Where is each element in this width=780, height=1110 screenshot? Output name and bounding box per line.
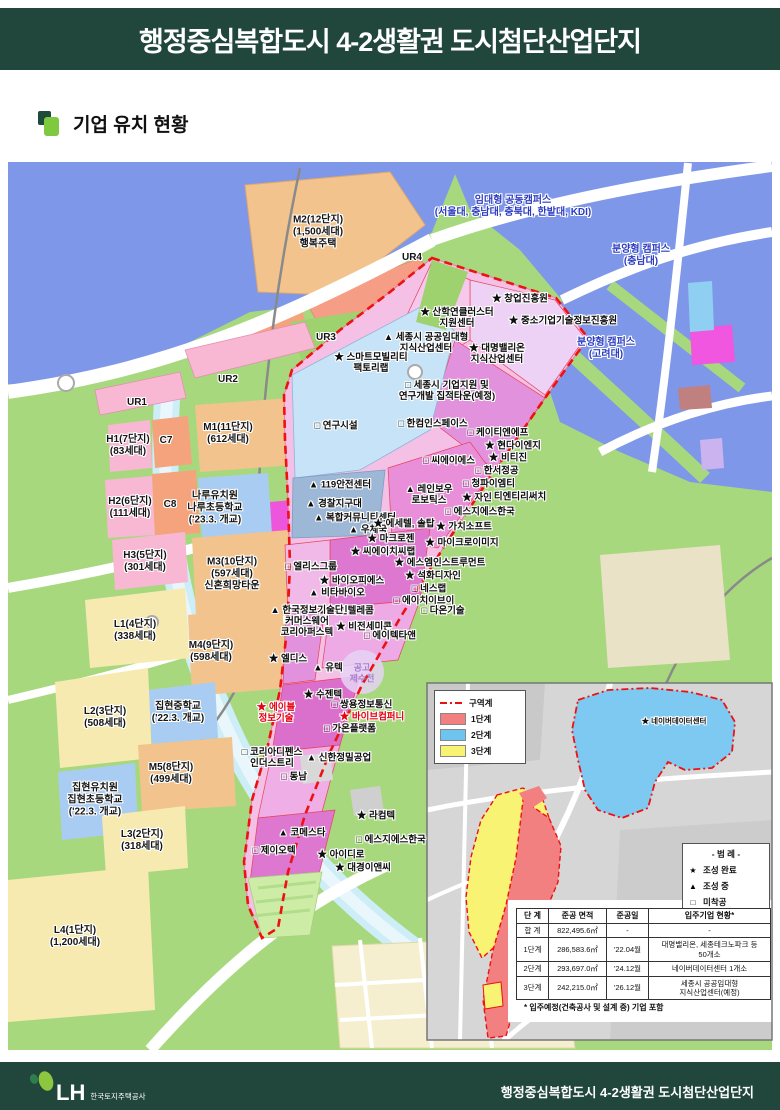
company-label: ★ 가치소프트 <box>436 521 492 532</box>
company-label: ▲ 유텍 <box>313 662 343 673</box>
company-label: □ 코리아디펜스 인더스트리 <box>242 747 303 769</box>
stage-table-row: 2단계293,697.0㎡'24.12월네이버데이터센터 1개소 <box>517 962 771 976</box>
zone-legend-item: 3단계 <box>440 743 520 759</box>
marker-legend-label: 미착공 <box>703 896 726 908</box>
company-label: ★ 에이블 정보기술 <box>257 702 295 724</box>
map-area-label: M1(11단지) (612세대) <box>203 422 253 446</box>
map-area-label: UR3 <box>316 332 336 344</box>
footer-title: 행정중심복합도시 4-2생활권 도시첨단산업단지 <box>501 1082 754 1101</box>
stage-table-cell: 대명밸리온, 세종테크노파크 등 50개소 <box>649 938 771 962</box>
company-label: □ 에이텍타앤 <box>364 630 416 641</box>
map-area-label: UR2 <box>218 374 238 386</box>
company-label: □ 연구시설 <box>314 420 357 431</box>
company-label: □ 에스지에스한국 <box>445 506 515 517</box>
company-label: ★ 현다이엔지 <box>485 440 541 451</box>
company-label: □ 세종시 기업지원 및 연구개발 집적타운(예정) <box>399 380 495 402</box>
stage-table-row: 1단계286,583.6㎡'22.04월대명밸리온, 세종테크노파크 등 50개… <box>517 938 771 962</box>
map-area-label: H3(5단지) (301세대) <box>123 550 166 574</box>
company-label: □ 엘리스그룹 <box>285 561 337 572</box>
campus-label: 분양형 캠퍼스 (고려대) <box>577 337 635 361</box>
company-label: ★ 라컴텍 <box>357 810 395 821</box>
stage-table-cell: 세종시 공공임대형 지식산업센터(예정) <box>649 976 771 1000</box>
stage-table-header: 준공일 <box>607 909 649 924</box>
stage-table-cell: 293,697.0㎡ <box>549 962 607 976</box>
marker-legend-title: - 범 례 - <box>688 848 764 860</box>
map-area-label: M5(8단지) (499세대) <box>149 762 194 786</box>
company-label: □ 쌍용정보통신 <box>332 699 393 710</box>
company-label: ★ 바이오피에스 <box>320 575 385 586</box>
company-label: ▲ 코메스타 <box>278 827 325 838</box>
company-label: □ 한컴인스페이스 <box>398 418 468 429</box>
map-area-label: H2(6단지) (111세대) <box>108 496 151 520</box>
map-area-label: M2(12단지) (1,500세대) 행복주택 <box>293 214 343 249</box>
company-label: ★ 아이디로 <box>317 849 364 860</box>
company-label: ▲ 레인보우 로보틱스 <box>405 484 452 506</box>
stage-table-row: 합 계822,495.6㎡-- <box>517 924 771 938</box>
page: 행정중심복합도시 4-2생활권 도시첨단산업단지 기업 유치 현황 <box>0 0 780 1110</box>
map-area-label: 집현중학교 ('22.3. 개교) <box>152 701 204 725</box>
company-label: ★ 중소기업기술정보진흥원 <box>509 315 617 326</box>
company-label: □ 가온플랫폼 <box>324 723 376 734</box>
stage-table-cell: - <box>649 924 771 938</box>
zone-legend-item: 2단계 <box>440 727 520 743</box>
company-label: □ 다온기술 <box>421 605 464 616</box>
zone-legend-label: 3단계 <box>471 745 491 757</box>
stage-table: 단 계준공 면적준공일입주기업 현황* 합 계822,495.6㎡--1단계28… <box>516 908 771 1000</box>
stage-table-cell: 3단계 <box>517 976 549 1000</box>
map-area-label: L4(1단지) (1,200세대) <box>50 925 100 949</box>
company-label: ★ 자인 <box>462 492 492 503</box>
lh-logo-text: LH <box>56 1082 85 1104</box>
stage-table-cell: '24.12월 <box>607 962 649 976</box>
map-area-label: L2(3단지) (508세대) <box>84 706 126 730</box>
lh-logo-icon <box>26 1070 56 1104</box>
map-area-label: L1(4단지) (338세대) <box>114 619 156 643</box>
table-footnote: * 입주예정(건축공사 및 설계 중) 기업 포함 <box>524 1002 664 1013</box>
company-label: ▲ 경찰지구대 <box>306 498 362 509</box>
stage-table-row: 3단계242,215.0㎡'26.12월세종시 공공임대형 지식산업센터(예정) <box>517 976 771 1000</box>
company-label: ★ 바이브컴퍼니 <box>340 711 405 722</box>
company-label: ▲ 비타바이오 <box>309 587 365 598</box>
stage-color-chip <box>440 713 466 725</box>
company-label: ★ 에세텔, 솔탑 <box>373 518 434 529</box>
stage-table-cell: '22.04월 <box>607 938 649 962</box>
company-label: ★ 마이크로이미지 <box>425 537 498 548</box>
stage-table-header: 준공 면적 <box>549 909 607 924</box>
marker-legend-item: ★조성 완료 <box>688 862 764 878</box>
stage-table-header: 단 계 <box>517 909 549 924</box>
inset-zone-legend: 구역계1단계2단계3단계 <box>434 690 526 764</box>
zone-legend-label: 1단계 <box>471 713 491 725</box>
map-area-label: 집현유치원 집현초등학교 ('22.3. 개교) <box>67 782 122 817</box>
stage-table-cell: '26.12월 <box>607 976 649 1000</box>
company-label: □ 제이오텍 <box>252 845 295 856</box>
company-label: □ 네스랩 <box>412 583 447 594</box>
zone-legend-label: 구역계 <box>469 697 492 709</box>
company-label: ★ 산학연클러스터 지원센터 <box>420 307 493 329</box>
company-label: ★ 엘디스 <box>269 653 307 664</box>
marker-glyph-icon: ★ <box>688 866 698 875</box>
company-label: □ 청파이엠티 <box>463 478 515 489</box>
map-watermark: 공고 제수전 <box>350 662 375 683</box>
company-label: ★ 씨에이치씨랩 <box>351 546 416 557</box>
company-label: ★ 에스엠인스트루먼트 <box>395 557 486 568</box>
company-label: ★ 마크로젠 <box>367 533 414 544</box>
zone-legend-label: 2단계 <box>471 729 491 741</box>
company-label: ★ 비티진 <box>489 452 527 463</box>
map-area-label: M3(10단지) (597세대) 신혼희망타운 <box>204 556 259 591</box>
stage-table-cell: - <box>607 924 649 938</box>
map-area-label: M4(9단지) (598세대) <box>189 640 234 664</box>
map-area-label: L3(2단지) (318세대) <box>121 829 163 853</box>
marker-glyph-icon: ▲ <box>688 882 698 891</box>
stage-table-cell: 합 계 <box>517 924 549 938</box>
company-label: ▲ 신한정밀공업 <box>307 752 371 763</box>
stage-table-body: 합 계822,495.6㎡--1단계286,583.6㎡'22.04월대명밸리온… <box>517 924 771 1000</box>
map-area-label: H1(7단지) (83세대) <box>106 434 149 458</box>
company-label: ▲ 119안전센터 <box>309 479 371 490</box>
zone-legend-item: 구역계 <box>440 695 520 711</box>
stage-table-header: 입주기업 현황* <box>649 909 771 924</box>
marker-glyph-icon: □ <box>688 898 698 907</box>
stage-table-cell: 822,495.6㎡ <box>549 924 607 938</box>
map-area-label: 나루유치원 나루초등학교 ('23.3. 개교) <box>187 490 242 525</box>
inset-marker-legend: - 범 례 - ★조성 완료▲조성 중□미착공 <box>682 843 770 915</box>
company-label: □ 동남 <box>281 771 307 782</box>
company-label: ★ 대명밸리온 지식산업센터 <box>469 343 525 365</box>
company-label: □ 케이티엔에프 <box>468 427 529 438</box>
stage-table-cell: 1단계 <box>517 938 549 962</box>
stage-table-cell: 2단계 <box>517 962 549 976</box>
company-label: ★ 창업진흥원 <box>492 293 548 304</box>
company-label: ★ 스마트모빌리티 팩토리랩 <box>334 352 407 374</box>
map-area-label: C8 <box>164 499 177 511</box>
map-area-label: UR1 <box>127 397 147 409</box>
campus-label: 분양형 캠퍼스 (충남대) <box>612 244 670 268</box>
company-label: ▲ 한국정보기술단 커머스웨어 코리아퍼스텍 <box>270 605 343 639</box>
stage-table-cell: 286,583.6㎡ <box>549 938 607 962</box>
stage-table-cell: 242,215.0㎡ <box>549 976 607 1000</box>
company-label: ★ 석화디자인 <box>405 570 461 581</box>
boundary-line-icon <box>440 702 464 704</box>
stage-color-chip <box>440 729 466 741</box>
company-label: □ 한서정공 <box>475 465 518 476</box>
stage-table-head: 단 계준공 면적준공일입주기업 현황* <box>517 909 771 924</box>
map-area-label: C7 <box>160 435 173 447</box>
lh-logo: LH 한국토지주택공사 <box>26 1070 146 1104</box>
campus-label: 임대형 공동캠퍼스 (서울대, 충남대, 충북대, 한밭대, KDI) <box>435 195 592 219</box>
footer-org: 한국토지주택공사 <box>90 1091 145 1102</box>
zone-legend-item: 1단계 <box>440 711 520 727</box>
company-label: □ 씨에이에스 <box>423 455 475 466</box>
inset-naver-label: ★ 네이버데이터센터 <box>642 718 707 727</box>
map-area-label: UR4 <box>402 252 422 264</box>
marker-legend-label: 조성 완료 <box>703 864 737 876</box>
marker-legend-item: ▲조성 중 <box>688 878 764 894</box>
company-label: □ 에스지에스한국 <box>356 834 426 845</box>
stage-table-cell: 네이버데이터센터 1개소 <box>649 962 771 976</box>
company-label: ★ 대경이앤씨 <box>335 862 391 873</box>
stage-color-chip <box>440 745 466 757</box>
marker-legend-label: 조성 중 <box>703 880 729 892</box>
